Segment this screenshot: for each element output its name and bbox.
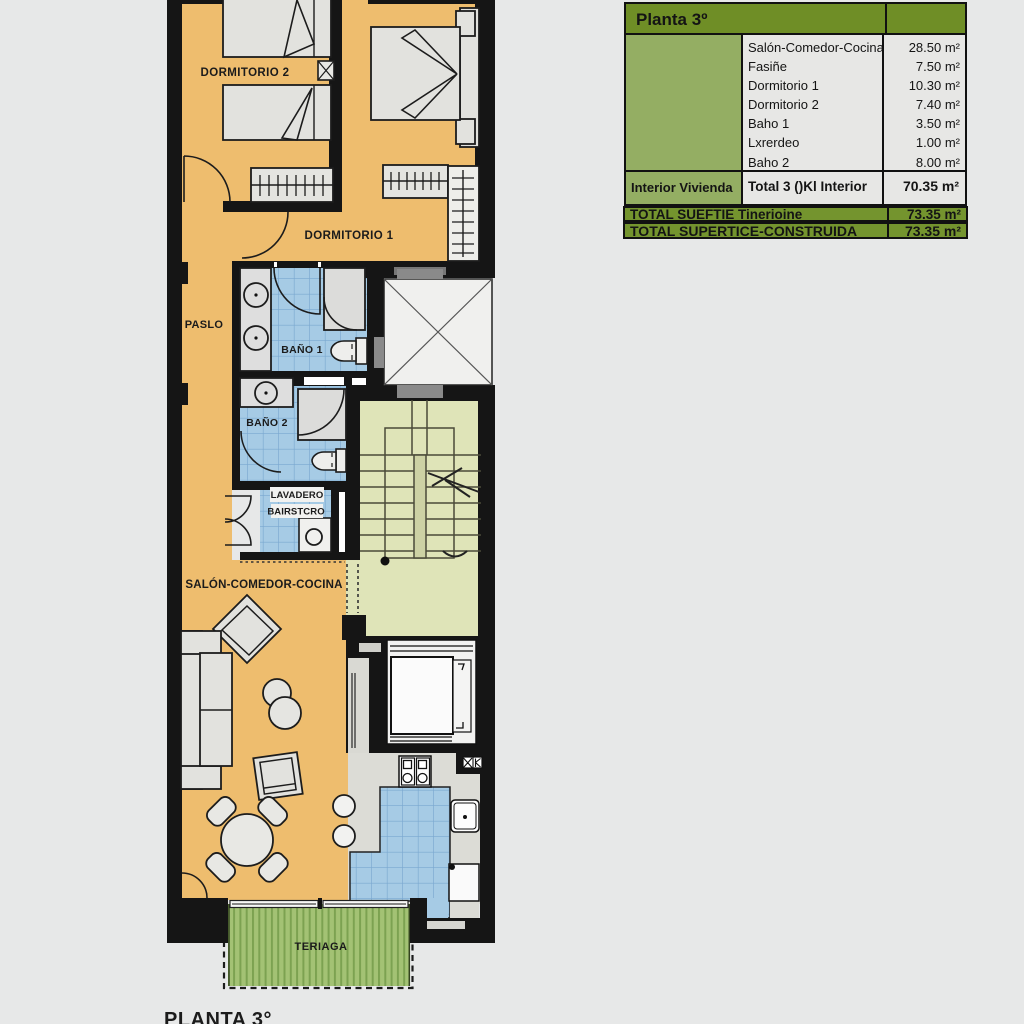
svg-text:BAIRSTCRO: BAIRSTCRO (267, 507, 324, 518)
svg-text:BAÑO 2: BAÑO 2 (246, 416, 287, 429)
svg-text:PLANTA 3°: PLANTA 3° (164, 1009, 272, 1024)
svg-text:LAVADERO: LAVADERO (271, 490, 324, 501)
svg-text:SALÓN-COMEDOR-COCINA: SALÓN-COMEDOR-COCINA (185, 578, 342, 591)
svg-text:DORMITORIO 2: DORMITORIO 2 (201, 67, 290, 79)
svg-text:DORMITORIO 1: DORMITORIO 1 (305, 230, 394, 242)
svg-text:BAÑO 1: BAÑO 1 (281, 343, 322, 356)
svg-text:PASLO: PASLO (185, 319, 224, 331)
svg-text:TERIAGA: TERIAGA (295, 941, 348, 953)
